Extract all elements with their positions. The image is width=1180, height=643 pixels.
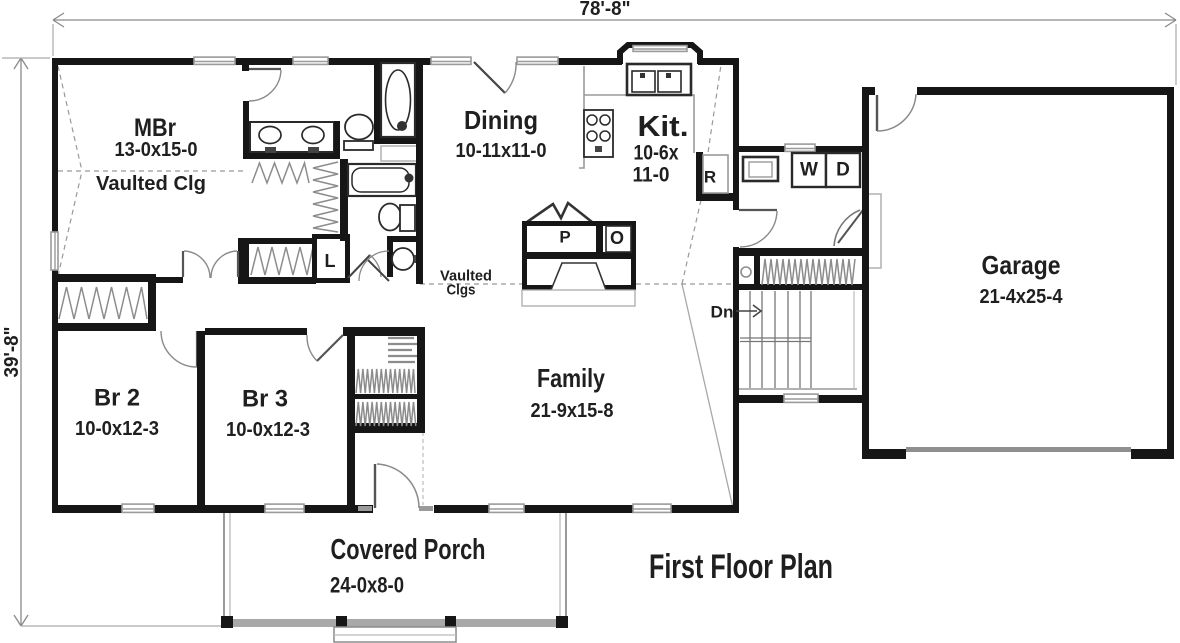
svg-text:78'-8": 78'-8" (580, 0, 631, 20)
svg-text:Family: Family (537, 363, 605, 393)
svg-text:L: L (325, 251, 336, 271)
svg-text:Dining: Dining (464, 105, 538, 135)
svg-text:Dn: Dn (711, 303, 734, 322)
svg-text:D: D (836, 160, 850, 181)
svg-text:21-4x25-4: 21-4x25-4 (980, 286, 1064, 308)
svg-text:10-11x11-0: 10-11x11-0 (456, 140, 547, 162)
svg-text:W: W (800, 160, 818, 181)
svg-text:Vaulted Clg: Vaulted Clg (96, 173, 206, 195)
svg-text:Clgs: Clgs (447, 282, 476, 299)
svg-text:Garage: Garage (982, 250, 1061, 280)
svg-text:Kit.: Kit. (638, 111, 689, 143)
svg-text:10-0x12-3: 10-0x12-3 (226, 419, 310, 441)
svg-text:MBr: MBr (134, 114, 176, 142)
svg-text:11-0: 11-0 (633, 164, 670, 187)
svg-text:Br 3: Br 3 (242, 386, 288, 413)
svg-text:Covered Porch: Covered Porch (331, 534, 486, 566)
svg-text:First Floor Plan: First Floor Plan (649, 548, 833, 586)
svg-text:P: P (559, 228, 570, 247)
svg-text:R: R (704, 168, 716, 187)
svg-text:Br 2: Br 2 (94, 385, 140, 412)
svg-text:24-0x8-0: 24-0x8-0 (330, 573, 404, 598)
svg-text:10-0x12-3: 10-0x12-3 (75, 418, 159, 440)
svg-text:21-9x15-8: 21-9x15-8 (531, 400, 614, 422)
svg-text:39'-8": 39'-8" (1, 327, 23, 378)
svg-text:10-6x: 10-6x (634, 142, 679, 165)
svg-text:13-0x15-0: 13-0x15-0 (115, 139, 198, 161)
svg-text:O: O (610, 228, 624, 248)
